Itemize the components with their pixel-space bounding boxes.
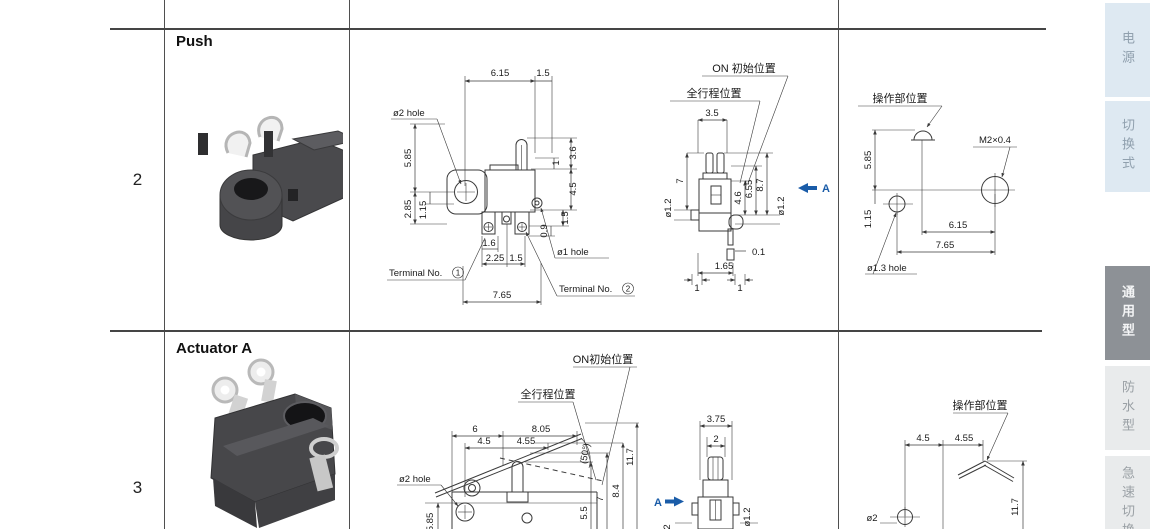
dim-11-7: 11.7 (1010, 498, 1021, 516)
product-photo-actuator-a (193, 352, 341, 529)
switch-outline (452, 462, 597, 529)
top-dimension-lines (905, 440, 983, 529)
table-column-line (349, 0, 350, 529)
view-a-arrow-right (665, 497, 684, 507)
row2-front-view-drawing: 6.15 1.5 (385, 58, 650, 308)
switch-side-outline (691, 153, 743, 260)
tab-switching-type[interactable]: 切换式 (1105, 101, 1150, 192)
operator-dome (911, 131, 935, 140)
dim-6-15: 6.15 (491, 68, 510, 79)
switch-body (211, 394, 337, 528)
row3-front-view-drawing: ON初始位置 全行程位置 6 8.05 4.5 4.55 (50°) (395, 345, 663, 529)
full-stroke-label: 全行程位置 (687, 86, 742, 100)
right-dimension-lines (987, 461, 1027, 529)
dim-dia1-2: ø1.2 (742, 507, 753, 526)
dim-0-1: 0.1 (752, 247, 765, 258)
terminal2-label: Terminal No. (559, 284, 612, 295)
hole2-label: ø2 hole (399, 474, 431, 485)
hole2-label: ø2 hole (393, 108, 425, 119)
tab-label: 通用型 (1118, 285, 1137, 342)
tab-label: 电源 (1118, 31, 1137, 69)
view-a-label: A (654, 497, 662, 509)
table-column-line (164, 0, 165, 529)
dim-7-65: 7.65 (936, 240, 955, 251)
dim-3-75: 3.75 (707, 414, 726, 425)
view-a-label: A (822, 183, 830, 195)
dim-4-6: 4.6 (733, 191, 744, 204)
table-row-divider (110, 330, 1042, 332)
dimension-lines (875, 130, 995, 255)
dim-11-7: 11.7 (625, 448, 636, 466)
operating-part-label: 操作部位置 (953, 398, 1008, 412)
hole1-label: ø1 hole (557, 247, 589, 258)
dim-1: 1 (551, 160, 562, 165)
dim-4-55: 4.55 (517, 436, 536, 447)
operating-part-label: 操作部位置 (873, 91, 928, 105)
tab-general-purpose[interactable]: 通用型 (1105, 266, 1150, 360)
full-stroke-label: 全行程位置 (521, 387, 576, 401)
v-actuator (958, 461, 1014, 482)
category-tab-bar: 电源 切换式 通用型 防水型 急速切换 (1105, 0, 1150, 529)
dim-1-15: 1.15 (418, 201, 429, 220)
row-number: 3 (110, 478, 165, 498)
catalog-page: 2 Push 6.15 1.5 (0, 0, 1150, 529)
mount-hole (890, 507, 920, 527)
dim-1-65: 1.65 (715, 261, 734, 272)
dim-dia1-2-right: ø1.2 (776, 196, 787, 215)
dim-8-7: 8.7 (755, 178, 766, 191)
dim-3-6: 3.6 (568, 146, 579, 159)
dim-5-85: 5.85 (425, 513, 436, 529)
dim-6-15: 6.15 (949, 220, 968, 231)
dim-7-65: 7.65 (493, 290, 512, 301)
dim-2-partial: 2 (662, 524, 673, 529)
tab-quick-switching[interactable]: 急速切换 (1105, 456, 1150, 529)
table-row-divider (110, 28, 1046, 30)
dim-8-4: 8.4 (611, 484, 622, 497)
dim-4-5: 4.5 (568, 182, 579, 195)
dim-7: 7 (595, 496, 606, 501)
dim-1-5: 1.5 (536, 68, 549, 79)
dim-4-55: 4.55 (955, 433, 974, 444)
dim-0-9: 0.9 (539, 224, 550, 237)
switch-outline (447, 140, 542, 235)
tab-label: 切换式 (1118, 118, 1137, 175)
hole1-3-label: ø1.3 hole (867, 263, 907, 274)
dim-8-05: 8.05 (532, 424, 551, 435)
dim-2: 2 (713, 434, 718, 445)
dim-1-5-bottom: 1.5 (509, 253, 522, 264)
dim-6: 6 (472, 424, 477, 435)
dim-4-5: 4.5 (916, 433, 929, 444)
dim-1-left: 1 (694, 283, 699, 294)
on-position-label: ON 初始位置 (712, 61, 776, 75)
dim-3-5: 3.5 (705, 108, 718, 119)
row3-side-view-drawing: 3.75 2 A ø1.2 2 (650, 395, 840, 529)
terminal1-label: Terminal No. (389, 268, 442, 279)
view-a-arrow-left (798, 183, 817, 193)
dim-2-25: 2.25 (486, 253, 505, 264)
dim-1-right: 1 (737, 283, 742, 294)
dim-5-5: 5.5 (579, 506, 590, 519)
top-dimension-lines (700, 421, 732, 480)
tab-label: 防水型 (1118, 380, 1137, 437)
dim-5-85: 5.85 (403, 149, 414, 168)
type-label-push: Push (176, 33, 213, 50)
dim-6-55: 6.55 (744, 180, 755, 199)
tab-waterproof[interactable]: 防水型 (1105, 366, 1150, 450)
row2-side-view-drawing: ON 初始位置 全行程位置 3.5 7 ø (640, 58, 840, 308)
product-photo-push (198, 103, 343, 253)
dim-1-5-right: 1.5 (560, 211, 571, 224)
dim-7: 7 (675, 178, 686, 183)
top-dimension-lines (452, 431, 577, 497)
dim-partial: ø2 (866, 513, 877, 524)
dim-4-5: 4.5 (477, 436, 490, 447)
dim-dia1-2-left: ø1.2 (663, 198, 674, 217)
dim-1-15: 1.15 (863, 210, 874, 229)
row-number: 2 (110, 170, 165, 190)
row3-mounting-view-drawing: 操作部位置 4.5 4.55 11.7 ø2 (850, 393, 1100, 529)
terminal2-number: 2 (626, 285, 631, 294)
tab-label: 急速切换 (1118, 466, 1137, 529)
dim-5-85: 5.85 (863, 151, 874, 170)
tab-power[interactable]: 电源 (1105, 3, 1150, 97)
dim-2-85: 2.85 (403, 200, 414, 219)
row2-mounting-view-drawing: 操作部位置 M2×0.4 5.85 1.15 (845, 83, 1050, 293)
thread-label: M2×0.4 (979, 135, 1011, 146)
terminal1-number: 1 (456, 269, 461, 278)
on-position-label: ON初始位置 (573, 352, 634, 366)
